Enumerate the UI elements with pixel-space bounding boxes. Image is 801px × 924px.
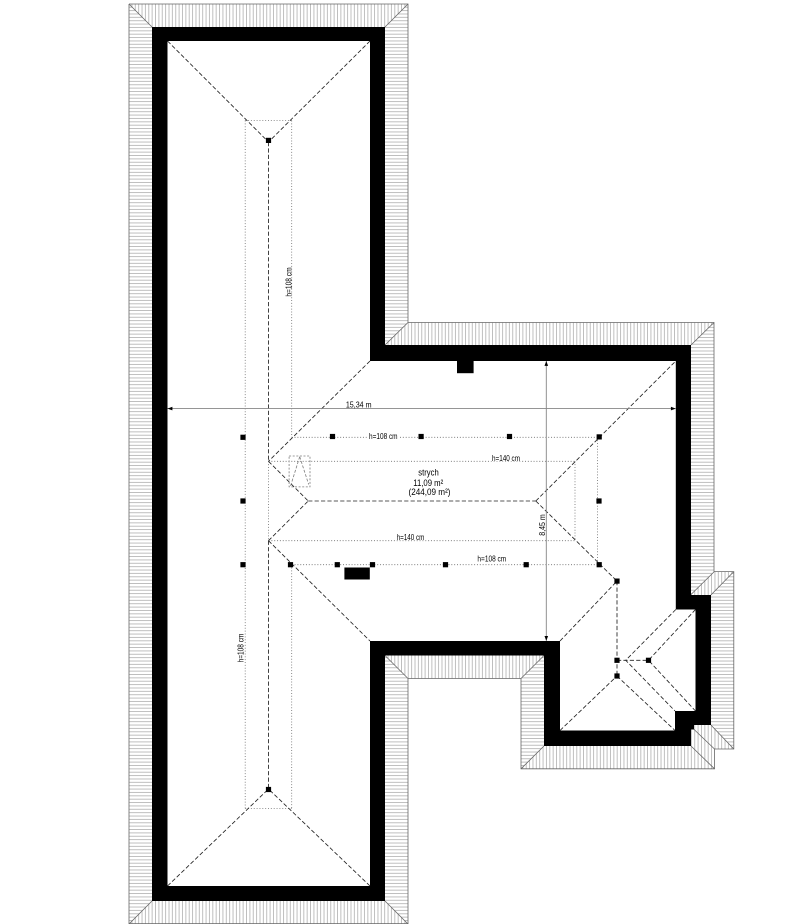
svg-text:h=108 cm: h=108 cm <box>477 554 506 563</box>
svg-text:h=140 cm: h=140 cm <box>492 454 520 463</box>
svg-text:(244,09 m²): (244,09 m²) <box>409 487 451 497</box>
svg-text:h=108 cm: h=108 cm <box>369 432 398 441</box>
svg-text:strych: strych <box>418 468 439 478</box>
svg-text:h=108 cm: h=108 cm <box>237 634 246 663</box>
svg-text:h=108 cm: h=108 cm <box>284 267 293 296</box>
svg-text:h=140 cm: h=140 cm <box>397 533 425 542</box>
svg-text:15,34 m: 15,34 m <box>346 400 372 409</box>
svg-text:8,45 m: 8,45 m <box>537 514 547 535</box>
